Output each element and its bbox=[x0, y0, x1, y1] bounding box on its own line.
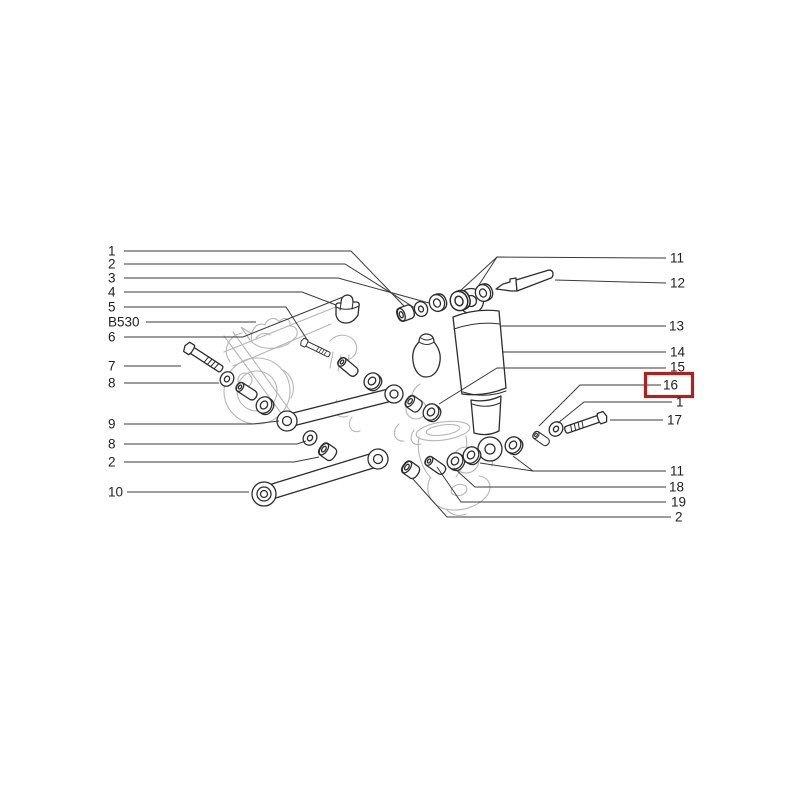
callout-label-9-left-9: 9 bbox=[108, 417, 116, 432]
part-lower-bushing-small bbox=[420, 401, 444, 425]
leader-line-5 bbox=[124, 307, 308, 341]
part-lower-trailing-arm bbox=[252, 449, 388, 506]
callout-label-14-right-16: 14 bbox=[670, 345, 686, 360]
callout-label-1-right-19: 1 bbox=[676, 395, 684, 410]
callout-label-11-right-21: 11 bbox=[670, 464, 684, 479]
callout-label-17-right-20: 17 bbox=[667, 413, 682, 428]
leader-line-12 bbox=[555, 280, 666, 283]
callout-label-6-left-6: 6 bbox=[108, 330, 116, 345]
callout-label-8-left-8: 8 bbox=[108, 376, 116, 391]
callout-labels: 12345B530678982101112131415161171118192 bbox=[108, 244, 686, 525]
leader-lines bbox=[124, 251, 672, 517]
leader-line-2 bbox=[124, 457, 319, 462]
leader-line-2 bbox=[412, 478, 671, 517]
suspension-parts-diagram: 12345B530678982101112131415161171118192 bbox=[0, 0, 800, 800]
callout-label-4-left-3: 4 bbox=[108, 285, 116, 300]
part-arm-nut bbox=[317, 441, 339, 462]
part-pivot-bolt bbox=[182, 341, 225, 374]
part-top-bushing-inner bbox=[427, 292, 449, 314]
callout-label-3-left-2: 3 bbox=[108, 271, 116, 286]
leader-line-3 bbox=[124, 278, 429, 303]
part-bottom-nut bbox=[400, 459, 422, 480]
leader-line-8 bbox=[124, 441, 306, 444]
callout-label-11-right-13: 11 bbox=[670, 251, 684, 266]
part-bracket-bolt bbox=[299, 338, 331, 359]
leader-line-4 bbox=[124, 292, 336, 305]
part-bottom-bolt bbox=[563, 411, 608, 436]
part-bottom-spacer bbox=[531, 430, 550, 447]
callout-label-15-right-17: 15 bbox=[670, 360, 685, 375]
callout-label-13-right-15: 13 bbox=[669, 319, 684, 334]
callout-label-8-left-10: 8 bbox=[108, 437, 116, 452]
leader-line-9 bbox=[124, 421, 279, 424]
callout-label-5-left-4: 5 bbox=[108, 300, 116, 315]
parts-diagram-page: 12345B530678982101112131415161171118192 bbox=[0, 0, 800, 800]
leader-line-2 bbox=[124, 264, 415, 308]
part-arm-bushing bbox=[361, 370, 385, 394]
leader-line-11-fork bbox=[480, 463, 533, 471]
part-arm-washer bbox=[300, 428, 319, 448]
callout-label-10-left-12: 10 bbox=[108, 485, 123, 500]
callout-label-19-right-23: 19 bbox=[671, 495, 686, 510]
leader-line-11 bbox=[513, 456, 666, 471]
part-bottom-bushing-right bbox=[502, 434, 526, 458]
part-mounting-stud bbox=[496, 270, 553, 291]
callout-label-2-right-24: 2 bbox=[675, 510, 683, 525]
callout-label-18-right-22: 18 bbox=[669, 480, 684, 495]
part-bottom-washer bbox=[546, 419, 565, 439]
part-bump-stop-cap bbox=[336, 295, 359, 323]
callout-label-12-right-14: 12 bbox=[670, 276, 685, 291]
callout-label-16-right-18: 16 bbox=[663, 378, 678, 393]
part-upper-trailing-arm bbox=[277, 385, 403, 431]
callout-label-2-left-1: 2 bbox=[108, 257, 116, 272]
callout-label-2-left-11: 2 bbox=[108, 455, 116, 470]
callout-label-7-left-7: 7 bbox=[108, 359, 116, 374]
part-bump-stop-cone bbox=[413, 334, 440, 377]
callout-label-B530-left-5: B530 bbox=[108, 315, 140, 330]
